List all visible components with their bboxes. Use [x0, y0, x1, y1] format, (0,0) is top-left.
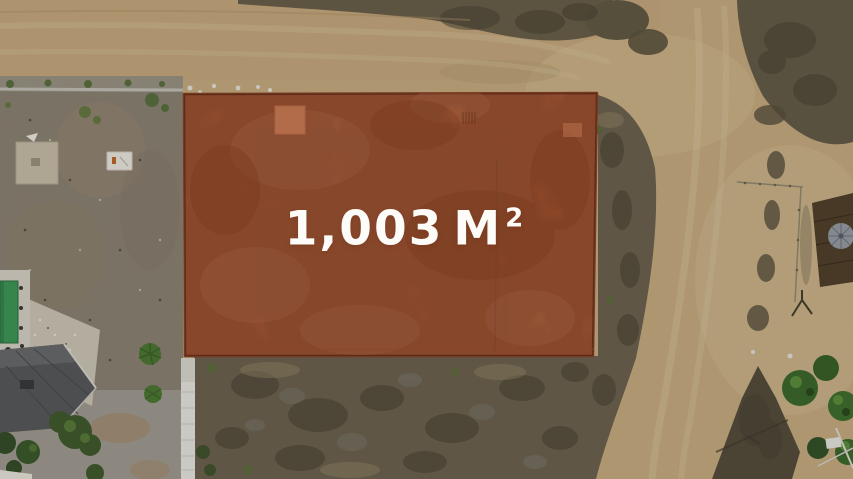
- area-unit: M: [453, 202, 502, 257]
- aerial-photo: 1,003M2: [0, 0, 853, 479]
- area-exponent: 2: [505, 206, 525, 232]
- area-value: 1,003: [285, 202, 444, 257]
- parcel-area-label: 1,003M2: [285, 206, 526, 253]
